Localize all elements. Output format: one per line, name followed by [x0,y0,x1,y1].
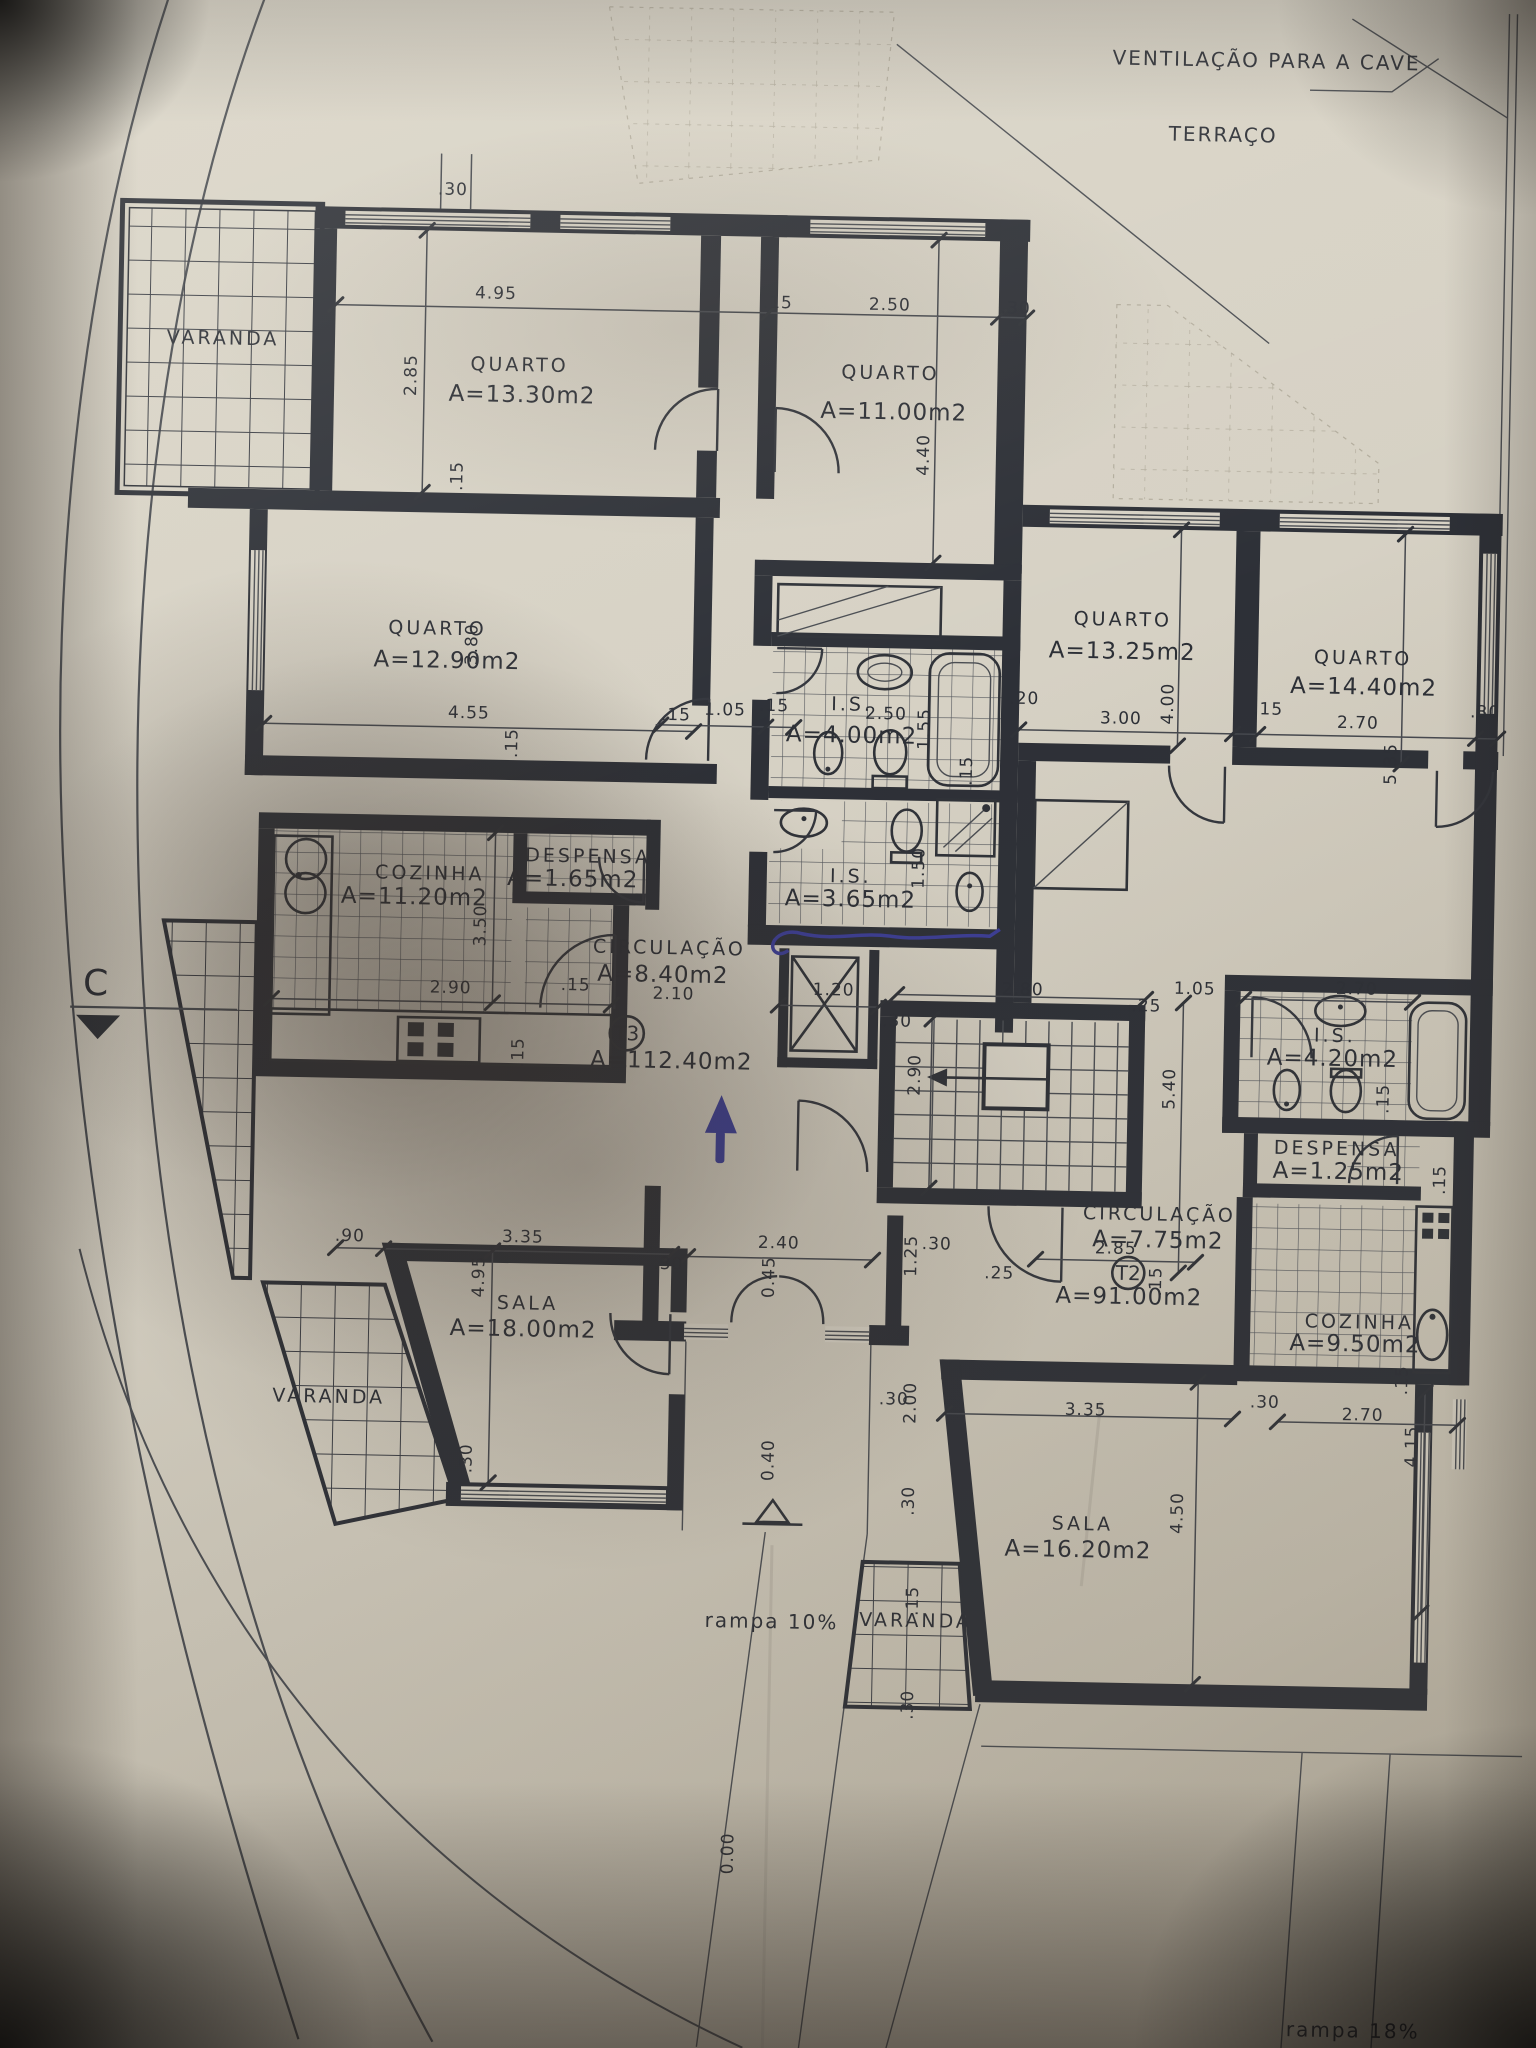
room-despensa-t2-area: A=1.25m2 [1272,1158,1404,1187]
dim: .15 [763,293,793,314]
dim: 3.00 [1100,708,1142,729]
room-isb-name: I.S. [830,865,872,888]
dim: .30 [456,1443,477,1473]
t2-tag: T2 [1115,1261,1141,1285]
dim: .15 [1392,1365,1413,1395]
dim: 2.70 [1341,1405,1383,1426]
room-circ-t2-name: CIRCULAÇÃO [1083,1201,1236,1227]
dim: 5.35 [1381,743,1402,785]
t2-area: A=91.00m2 [1055,1283,1202,1312]
dim: 0.45 [759,1256,780,1298]
room-cozinha-t2-area: A=9.50m2 [1289,1330,1421,1359]
dim: 2.50 [865,704,907,725]
dim: 1.50 [909,847,930,889]
dim: 0.40 [758,1439,779,1481]
dim: .30 [1250,1392,1280,1413]
floor-plan-drawing: VENTILAÇÃO PARA A CAVE TERRAÇO C rampa 1… [0,0,1536,2048]
room-q2-name: QUARTO [841,361,940,385]
dim: 2.70 [1336,979,1378,1000]
dim: .30 [882,1011,912,1032]
room-sala-t3-area: A=18.00m2 [449,1315,596,1344]
dim: 1.05 [704,700,746,721]
dim: 1.55 [914,708,935,750]
dim: .30 [1001,298,1031,319]
dim: .30 [1470,702,1500,723]
dim: .15 [661,705,691,726]
dim: 2.10 [652,984,694,1005]
dim: 3.35 [502,1227,544,1248]
dim: 4.15 [1402,1425,1423,1467]
dim: .15 [560,975,590,996]
room-q2-area: A=11.00m2 [820,398,967,427]
dim: 3.35 [1065,1400,1107,1421]
dim: 2.90 [905,1054,926,1096]
ramp-left-label: rampa 10% [704,1608,838,1635]
dim: .15 [1430,1165,1451,1195]
stairwell [893,1018,1129,1191]
dim: .30 [922,1234,952,1255]
room-circ-t3-name: CIRCULAÇÃO [593,935,746,961]
room-despensa-t3-area: A=1.65m2 [507,865,639,894]
floor-plan-photo: VENTILAÇÃO PARA A CAVE TERRAÇO C rampa 1… [0,0,1536,2048]
room-q5-name: QUARTO [1314,646,1413,670]
dim: 3.50 [470,904,491,946]
dim: .30 [899,1486,920,1516]
dim: .30 [879,1389,909,1410]
dim: 5.40 [1159,1068,1180,1110]
dim: .15 [1253,699,1283,720]
dim: .15 [759,696,789,717]
ventilation-note: VENTILAÇÃO PARA A CAVE [1112,45,1420,75]
dim: 4.00 [1158,683,1179,725]
dim: .15 [447,461,468,491]
dim: 2.70 [1337,713,1379,734]
section-letter: C [83,963,109,1004]
dim: .15 [957,756,978,786]
dim: 1.25 [901,1235,922,1277]
dim: .15 [1146,1266,1167,1296]
dim: .15 [1373,1084,1394,1114]
dim: 1.05 [1174,979,1216,1000]
dim: .15 [903,1586,924,1616]
room-isb-area: A=3.65m2 [785,885,917,914]
dim: 1.20 [813,980,855,1001]
terrace-note: TERRAÇO [1168,122,1278,148]
elevator [790,956,858,1051]
dim: .30 [898,1690,919,1720]
dim: .20 [1009,689,1039,710]
dim: .30 [438,180,468,201]
room-q3-area: A=12.90m2 [373,646,520,675]
dim: 2.50 [869,295,911,316]
dim: 4.40 [914,434,935,476]
dim: 2.85 [1095,1238,1137,1259]
room-varanda-bl: VARANDA [272,1385,385,1409]
room-is-t2-name: I.S. [1314,1024,1356,1047]
dim: .90 [335,1226,365,1247]
dim: 2.85 [401,354,422,396]
t3-tag: T3 [613,1021,639,1045]
room-is-t2-area: A=4.20m2 [1267,1045,1399,1074]
room-q4-name: QUARTO [1073,608,1172,632]
level-zero: 0.00 [718,1832,739,1874]
dim: 2.40 [758,1233,800,1254]
room-sala-t2-name: SALA [1052,1513,1114,1536]
dim: 2.80 [1002,979,1044,1000]
dim: .15 [508,1037,529,1067]
room-sala-t2-area: A=16.20m2 [1004,1536,1151,1565]
t3-area: A=112.40m2 [590,1047,753,1076]
room-varanda-tl: VARANDA [167,326,280,350]
room-isa-area: A=4.00m2 [786,721,918,750]
room-sala-t3-name: SALA [497,1292,559,1315]
room-cozinha-t3-name: COZINHA [375,861,485,885]
dim: 3.80 [462,623,483,665]
dim: .15 [502,728,523,758]
dim: 4.95 [475,283,517,304]
dim: 4.50 [1167,1492,1188,1534]
dim: 4.55 [448,703,490,724]
level-marker [742,1500,802,1525]
dim: .25 [984,1263,1014,1284]
room-q5-area: A=14.40m2 [1290,673,1437,702]
dim: 2.90 [430,978,472,999]
room-q4-area: A=13.25m2 [1049,637,1196,666]
room-q1-name: QUARTO [470,353,569,377]
dim: .30 [653,1254,683,1275]
dim: .25 [1131,996,1161,1017]
dim: 4.95 [469,1255,490,1297]
room-cozinha-t3-area: A=11.20m2 [341,883,488,912]
ramp-right-label: rampa 18% [1286,2017,1420,2044]
room-q1-area: A=13.30m2 [448,381,595,410]
